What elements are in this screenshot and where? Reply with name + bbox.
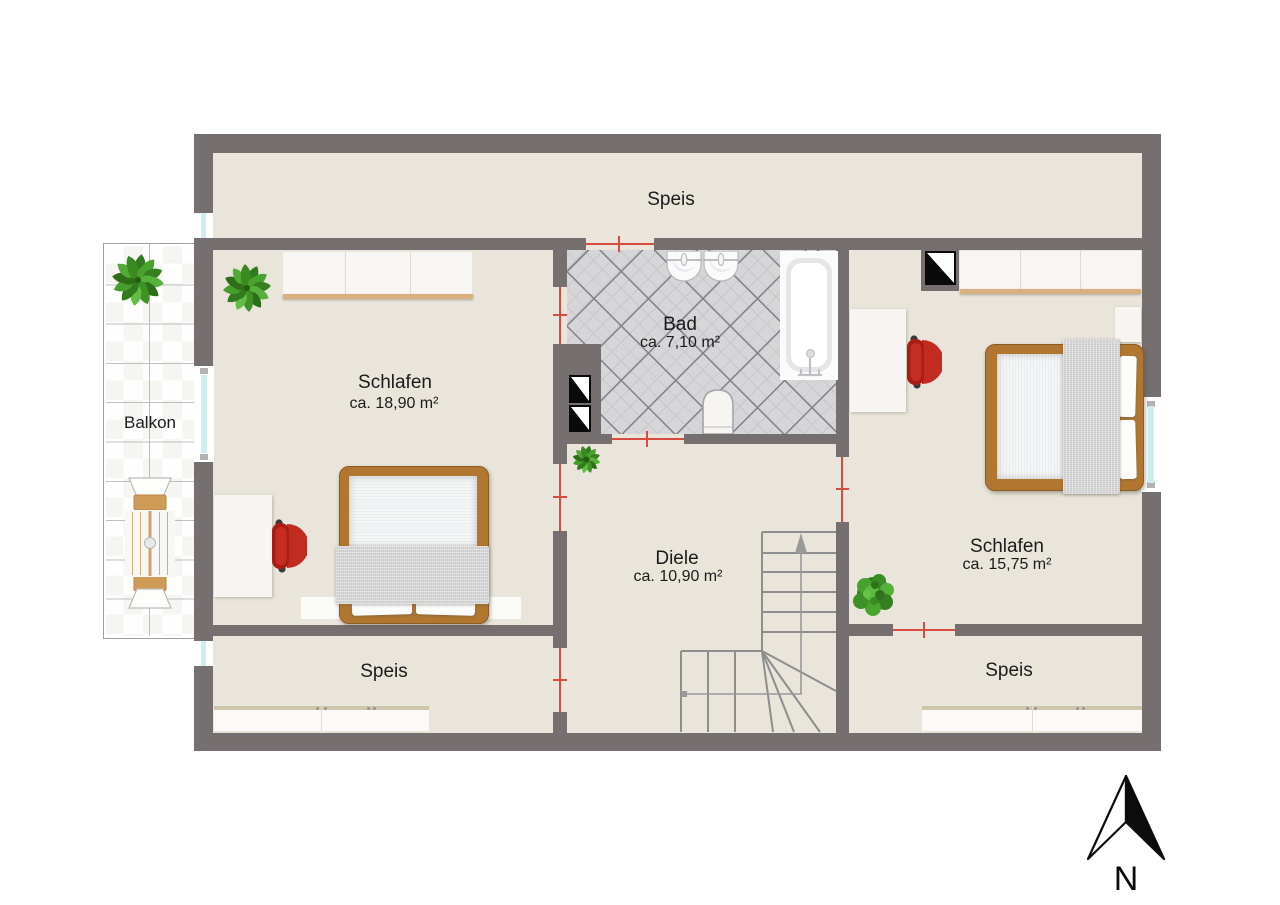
svg-text:N: N	[1114, 860, 1139, 895]
